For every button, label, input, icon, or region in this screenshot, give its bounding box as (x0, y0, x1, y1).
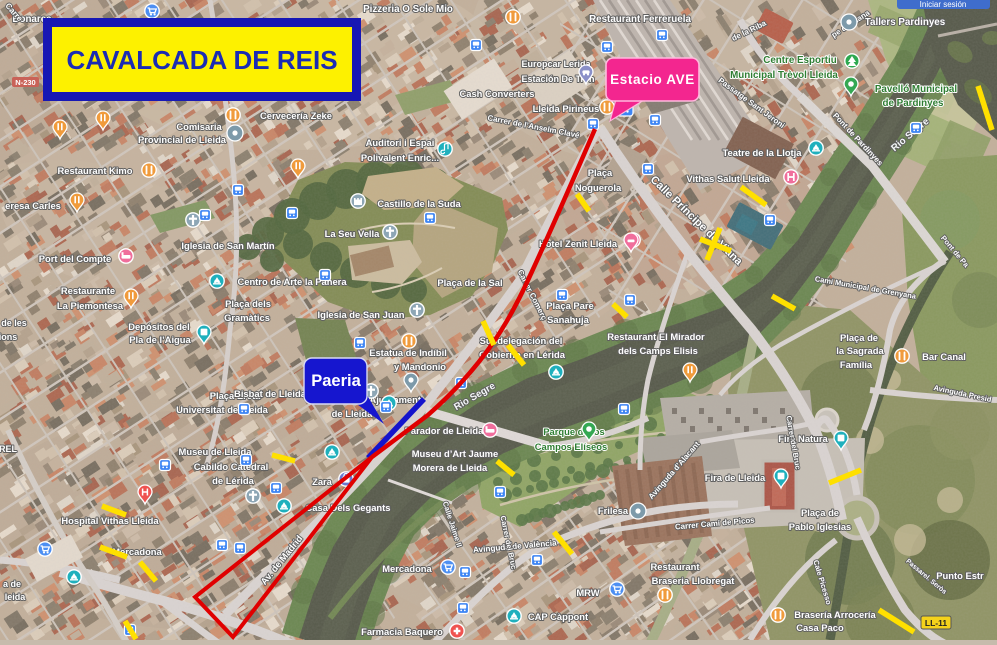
svg-text:Bar Canal: Bar Canal (922, 351, 966, 362)
svg-text:Auditori i Espai: Auditori i Espai (366, 137, 435, 148)
svg-text:Plaça de la Sal: Plaça de la Sal (437, 277, 502, 288)
svg-text:Depósitos del: Depósitos del (128, 321, 189, 332)
svg-text:Iglesia de San Juan: Iglesia de San Juan (317, 309, 404, 320)
svg-text:LL-11: LL-11 (925, 618, 947, 628)
svg-text:Polivalent Enric...: Polivalent Enric... (361, 152, 439, 163)
svg-text:Mercadona: Mercadona (382, 563, 432, 574)
svg-text:Brasería Arrocería: Brasería Arrocería (794, 609, 876, 620)
svg-text:Restaurante: Restaurante (61, 285, 115, 296)
svg-text:eresa Carles: eresa Carles (5, 200, 61, 211)
svg-text:Cabildo Catedral: Cabildo Catedral (194, 461, 269, 472)
svg-text:Campos Elíseos: Campos Elíseos (535, 441, 607, 452)
svg-text:Zara: Zara (312, 476, 333, 487)
svg-text:la Sagrada: la Sagrada (836, 345, 884, 356)
svg-text:Frilesa: Frilesa (598, 505, 629, 516)
svg-text:Iglesia de San Martín: Iglesia de San Martín (181, 240, 275, 251)
svg-text:Pizzeria O Sole Mio: Pizzeria O Sole Mio (363, 4, 453, 15)
svg-text:Plaça Pare: Plaça Pare (546, 300, 593, 311)
svg-text:Restaurant: Restaurant (651, 561, 700, 572)
svg-text:Comisaria: Comisaria (176, 121, 222, 132)
svg-text:Plaça: Plaça (588, 167, 613, 178)
svg-text:Parador de Lleida: Parador de Lleida (405, 425, 484, 436)
svg-text:de Lérida: de Lérida (212, 475, 254, 486)
svg-text:Sanahuja: Sanahuja (547, 314, 589, 325)
svg-text:Lleida Pirineus: Lleida Pirineus (533, 103, 600, 114)
svg-text:La Piemontesa: La Piemontesa (57, 300, 124, 311)
svg-text:N-230: N-230 (15, 78, 35, 87)
svg-text:MRW: MRW (576, 587, 599, 598)
svg-text:Restaurant Kimo: Restaurant Kimo (57, 165, 132, 176)
svg-text:a de: a de (3, 579, 21, 589)
svg-text:de les: de les (1, 318, 27, 328)
svg-text:Paeria: Paeria (311, 372, 361, 390)
svg-text:Morera de Lleida: Morera de Lleida (413, 462, 488, 473)
svg-text:Provincial de Lleida: Provincial de Lleida (138, 134, 227, 145)
svg-text:Universitat de Lleida: Universitat de Lleida (176, 404, 268, 415)
svg-text:Plaça de: Plaça de (801, 507, 839, 518)
svg-text:Estacio AVE: Estacio AVE (610, 72, 695, 87)
svg-text:dels Camps Elisis: dels Camps Elisis (618, 345, 698, 356)
svg-text:Pablo Iglesias: Pablo Iglesias (789, 521, 852, 532)
svg-text:Iniciar sesión: Iniciar sesión (920, 0, 967, 9)
svg-text:Punto Estr: Punto Estr (936, 570, 984, 581)
svg-text:Cash Converters: Cash Converters (459, 88, 534, 99)
svg-text:de Pardinyes: de Pardinyes (883, 98, 945, 109)
svg-text:ions: ions (0, 332, 17, 342)
svg-text:Hotel Zenit Lleida: Hotel Zenit Lleida (539, 238, 618, 249)
svg-text:REL: REL (0, 444, 18, 454)
svg-text:Restaurant Ferreruela: Restaurant Ferreruela (589, 14, 691, 25)
svg-text:Port del Compte: Port del Compte (39, 253, 111, 264)
svg-text:Fira Natura: Fira Natura (778, 433, 828, 444)
svg-text:Teatre de la Llotja: Teatre de la Llotja (722, 147, 802, 158)
svg-text:Braseria Llobregat: Braseria Llobregat (652, 575, 735, 586)
svg-text:Museu d’Art Jaume: Museu d’Art Jaume (412, 448, 498, 459)
svg-text:Cervecería Zeke: Cervecería Zeke (260, 110, 332, 121)
svg-text:Fira de Lleida: Fira de Lleida (705, 472, 766, 483)
svg-text:La Seu Vella: La Seu Vella (325, 228, 381, 239)
svg-text:Casa Dels Gegants: Casa Dels Gegants (306, 502, 391, 513)
svg-text:Família: Família (840, 359, 873, 370)
svg-text:leida: leida (5, 592, 27, 602)
svg-text:Casa Paco: Casa Paco (796, 622, 844, 633)
svg-text:CAVALCADA DE REIS: CAVALCADA DE REIS (66, 45, 337, 75)
svg-text:y Mandonio: y Mandonio (394, 361, 446, 372)
svg-text:Restaurant El Mirador: Restaurant El Mirador (607, 331, 705, 342)
svg-text:Farmacia Baquero: Farmacia Baquero (361, 626, 443, 637)
svg-text:Castillo de la Suda: Castillo de la Suda (377, 198, 461, 209)
svg-text:Noguerola: Noguerola (575, 182, 622, 193)
svg-text:Pla de l’Aigua: Pla de l’Aigua (129, 334, 191, 345)
svg-text:Municipal Trèvol Lleida: Municipal Trèvol Lleida (730, 70, 838, 81)
svg-text:Pavelló Municipal: Pavelló Municipal (875, 84, 957, 95)
svg-text:Bisbat de Lleida: Bisbat de Lleida (234, 388, 307, 399)
svg-text:CAP Càppont: CAP Càppont (528, 611, 588, 622)
svg-text:Plaça de: Plaça de (840, 332, 878, 343)
svg-text:Hospital Vithas Lleida: Hospital Vithas Lleida (61, 515, 159, 526)
svg-text:Plaça dels: Plaça dels (225, 298, 271, 309)
svg-text:Gobierno en Lérida: Gobierno en Lérida (479, 349, 566, 360)
svg-text:Centre Esportiu: Centre Esportiu (763, 55, 837, 66)
svg-text:Tallers Pardinyes: Tallers Pardinyes (865, 17, 946, 28)
svg-text:Vithas Salut Lleida: Vithas Salut Lleida (686, 173, 770, 184)
svg-text:Gramàtics: Gramàtics (224, 312, 270, 323)
